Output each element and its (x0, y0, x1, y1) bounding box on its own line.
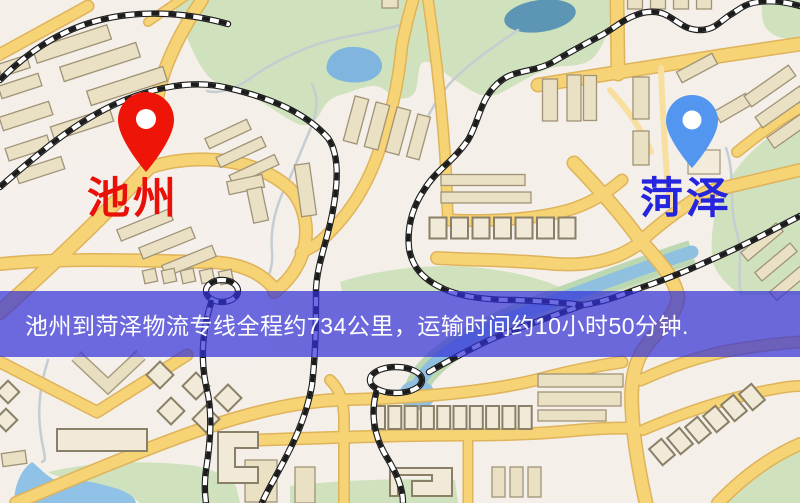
origin-pin-hole (136, 109, 156, 129)
route-info-banner: 池州到菏泽物流专线全程约734公里，运输时间约10小时50分钟. (0, 291, 800, 357)
map-image: 池州 菏泽 池州到菏泽物流专线全程约734公里，运输时间约10小时50分钟. (0, 0, 800, 503)
destination-pin-hole (683, 111, 702, 130)
destination-city-label: 菏泽 (640, 178, 732, 221)
route-info-text: 池州到菏泽物流专线全程约734公里，运输时间约10小时50分钟. (25, 307, 689, 341)
origin-city-label: 池州 (87, 178, 179, 221)
map-canvas (0, 0, 800, 503)
